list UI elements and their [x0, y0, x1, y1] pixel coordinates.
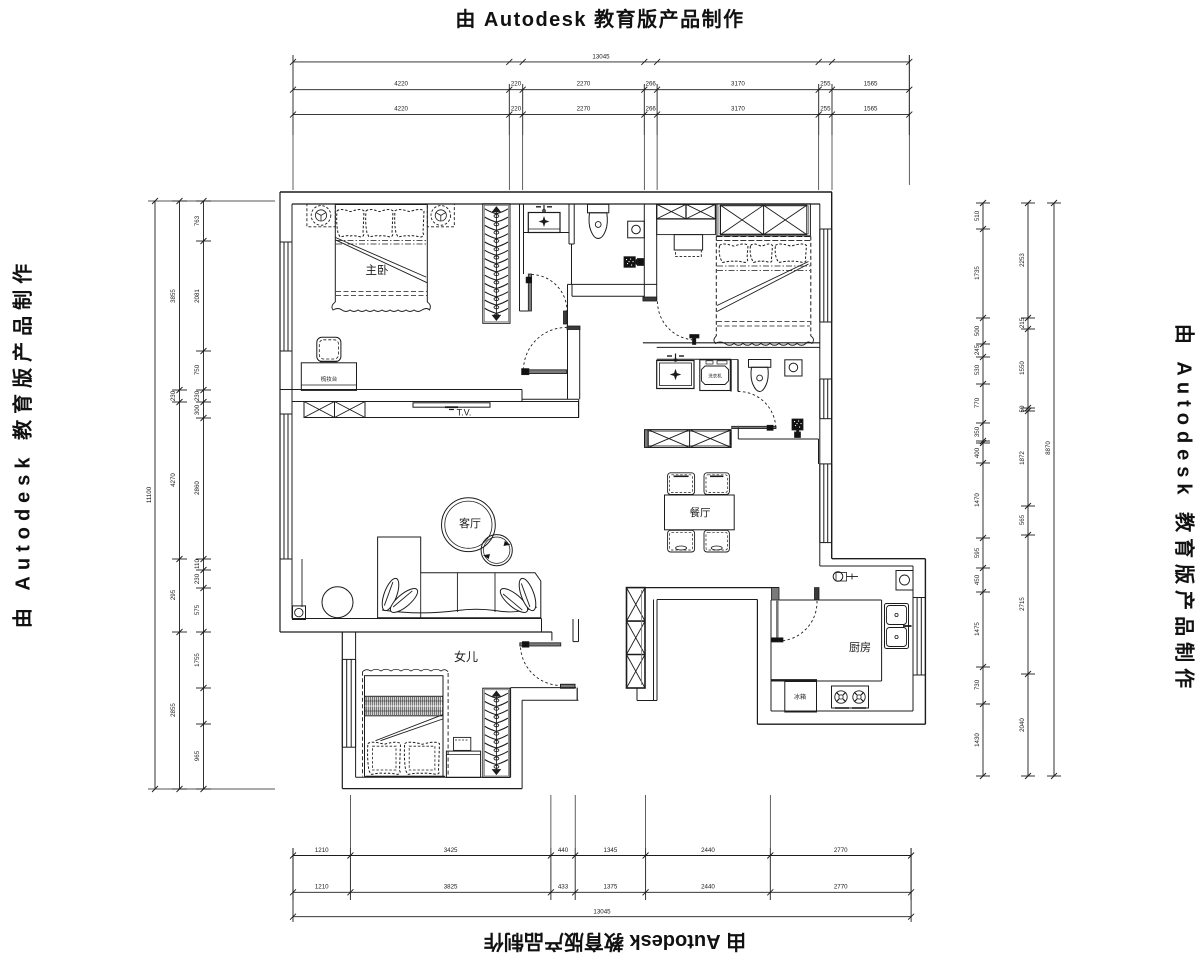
- svg-text:1210: 1210: [315, 847, 329, 854]
- svg-text:4270: 4270: [170, 473, 177, 487]
- svg-text:3855: 3855: [170, 289, 177, 303]
- svg-text:500: 500: [974, 325, 981, 336]
- svg-text:595: 595: [974, 547, 981, 558]
- svg-text:1872: 1872: [1019, 451, 1026, 465]
- svg-text:1475: 1475: [974, 622, 981, 636]
- svg-text:300: 300: [194, 404, 201, 415]
- svg-text:1210: 1210: [315, 884, 329, 891]
- svg-text:440: 440: [558, 847, 569, 854]
- svg-text:1565: 1565: [864, 106, 878, 113]
- svg-text:2040: 2040: [1019, 718, 1026, 732]
- svg-text:230: 230: [170, 390, 177, 401]
- svg-text:255: 255: [820, 81, 831, 88]
- svg-text:2855: 2855: [170, 703, 177, 717]
- svg-text:13045: 13045: [593, 909, 611, 916]
- svg-text:730: 730: [974, 679, 981, 690]
- svg-text:3170: 3170: [731, 81, 745, 88]
- svg-text:295: 295: [170, 589, 177, 600]
- svg-text:T.V.: T.V.: [457, 408, 472, 418]
- svg-text:1755: 1755: [194, 653, 201, 667]
- svg-text:266: 266: [646, 106, 657, 113]
- svg-text:350: 350: [974, 426, 981, 437]
- svg-text:565: 565: [1019, 514, 1026, 525]
- svg-text:450: 450: [974, 574, 981, 585]
- svg-text:8870: 8870: [1045, 441, 1052, 455]
- svg-text:2715: 2715: [1019, 597, 1026, 611]
- svg-text:400: 400: [974, 447, 981, 458]
- svg-text:2081: 2081: [194, 289, 201, 303]
- svg-text:2270: 2270: [577, 106, 591, 113]
- svg-text:4220: 4220: [394, 81, 408, 88]
- svg-text:3170: 3170: [731, 106, 745, 113]
- svg-text:1375: 1375: [604, 884, 618, 891]
- svg-text:2253: 2253: [1019, 253, 1026, 267]
- svg-text:厨房: 厨房: [849, 641, 871, 654]
- svg-text:3425: 3425: [444, 847, 458, 854]
- svg-text:965: 965: [194, 750, 201, 761]
- svg-text:1470: 1470: [974, 493, 981, 507]
- svg-text:客厅: 客厅: [459, 516, 481, 530]
- svg-text:245: 245: [974, 344, 981, 355]
- svg-text:2770: 2770: [834, 847, 848, 854]
- svg-text:2270: 2270: [577, 81, 591, 88]
- svg-text:230: 230: [194, 390, 201, 401]
- svg-text:13045: 13045: [592, 54, 610, 61]
- svg-text:梳妆台: 梳妆台: [321, 375, 338, 383]
- svg-text:1735: 1735: [974, 266, 981, 280]
- svg-text:11100: 11100: [146, 486, 153, 503]
- svg-text:2440: 2440: [701, 847, 715, 854]
- svg-text:2770: 2770: [834, 884, 848, 891]
- svg-text:750: 750: [194, 364, 201, 375]
- svg-text:2860: 2860: [194, 481, 201, 495]
- svg-text:763: 763: [194, 215, 201, 226]
- svg-text:110: 110: [194, 559, 201, 569]
- svg-text:575: 575: [194, 604, 201, 615]
- svg-text:1345: 1345: [604, 847, 618, 854]
- svg-text:220: 220: [511, 81, 522, 88]
- svg-text:266: 266: [646, 81, 657, 88]
- svg-text:50: 50: [1019, 405, 1026, 412]
- svg-text:洗衣机: 洗衣机: [708, 373, 722, 380]
- svg-text:530: 530: [974, 364, 981, 375]
- svg-text:510: 510: [974, 210, 981, 221]
- svg-text:230: 230: [194, 573, 201, 584]
- svg-text:3825: 3825: [444, 884, 458, 891]
- svg-text:215: 215: [1019, 317, 1026, 328]
- svg-text:1430: 1430: [974, 733, 981, 747]
- svg-text:1565: 1565: [864, 81, 878, 88]
- svg-text:主卧: 主卧: [366, 264, 389, 277]
- svg-text:餐厅: 餐厅: [690, 506, 711, 519]
- svg-text:4220: 4220: [394, 106, 408, 113]
- svg-text:2440: 2440: [701, 884, 715, 891]
- svg-text:255: 255: [820, 106, 831, 113]
- svg-text:冰箱: 冰箱: [794, 693, 806, 701]
- svg-text:1550: 1550: [1019, 361, 1026, 375]
- svg-text:女儿: 女儿: [454, 649, 478, 664]
- svg-text:220: 220: [511, 106, 522, 113]
- svg-text:433: 433: [558, 884, 569, 891]
- svg-text:770: 770: [974, 397, 981, 408]
